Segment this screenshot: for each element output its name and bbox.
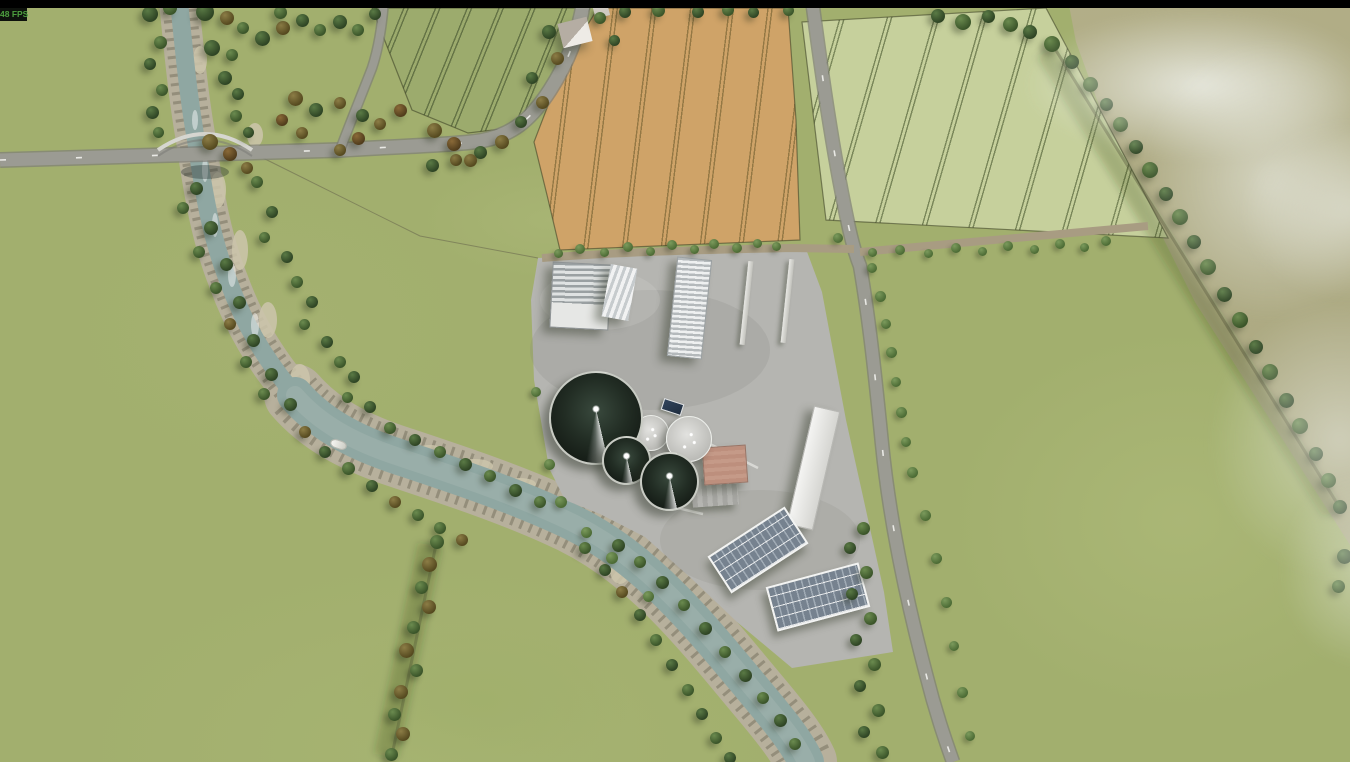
letterbox-bar [0, 0, 1350, 8]
fps-label: 48 FPS [0, 8, 28, 21]
fps-counter: 48 FPS [0, 8, 27, 21]
fog-layer [0, 0, 1350, 762]
game-viewport[interactable]: 48 FPS [0, 0, 1350, 762]
